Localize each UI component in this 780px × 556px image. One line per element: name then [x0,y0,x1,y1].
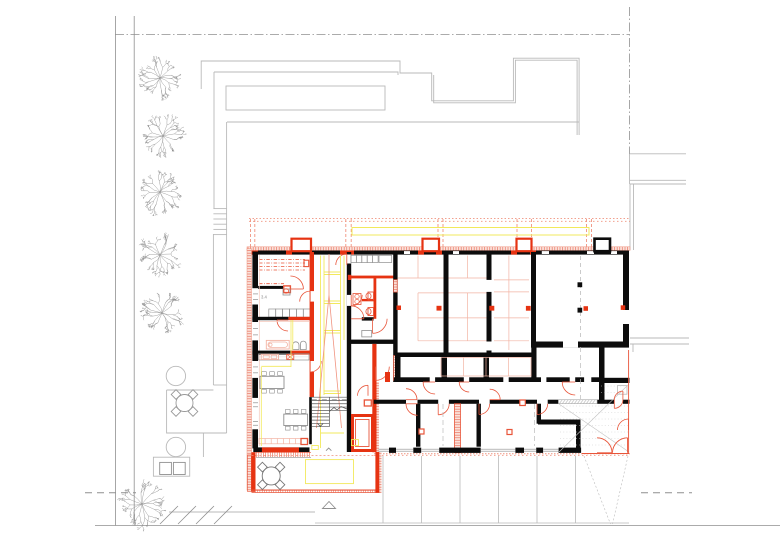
svg-text:3.4: 3.4 [261,295,267,300]
